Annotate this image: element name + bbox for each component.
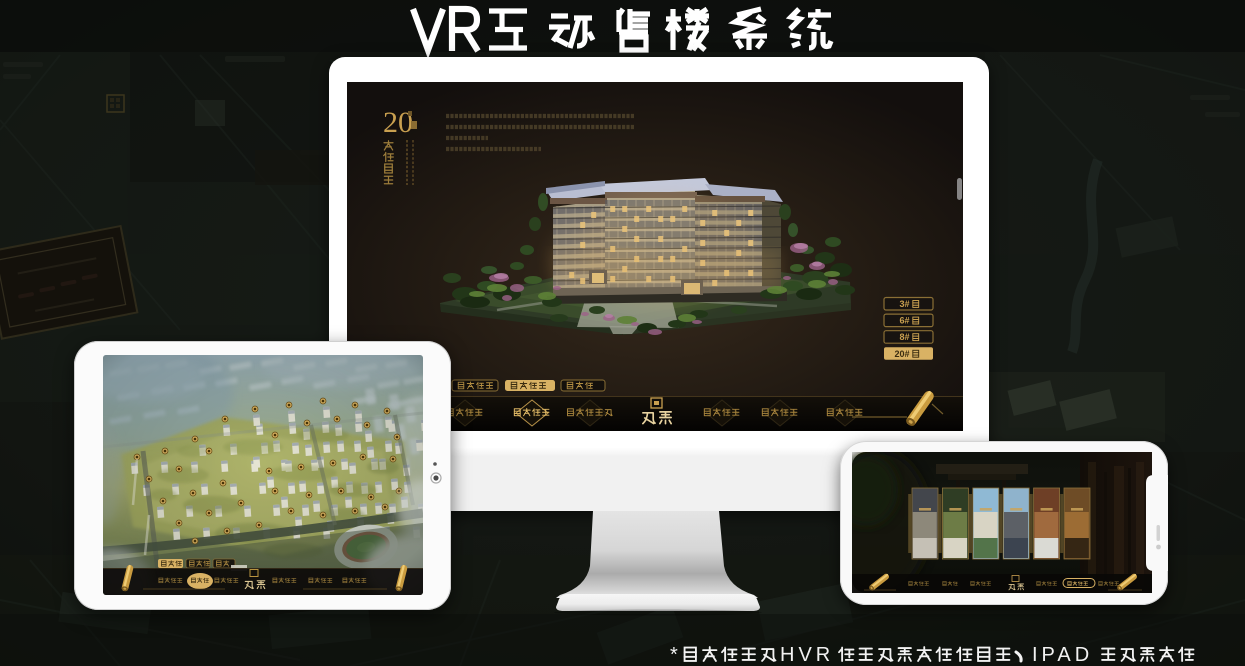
svg-text:20: 20	[383, 106, 413, 139]
svg-text:IPAD: IPAD	[1032, 644, 1093, 666]
svg-text:HVR: HVR	[780, 644, 834, 666]
svg-text:*: *	[670, 644, 678, 666]
svg-text:20#: 20#	[894, 349, 909, 359]
svg-text:8#: 8#	[899, 332, 909, 342]
svg-text:6#: 6#	[899, 316, 909, 326]
svg-text:3#: 3#	[899, 299, 909, 309]
